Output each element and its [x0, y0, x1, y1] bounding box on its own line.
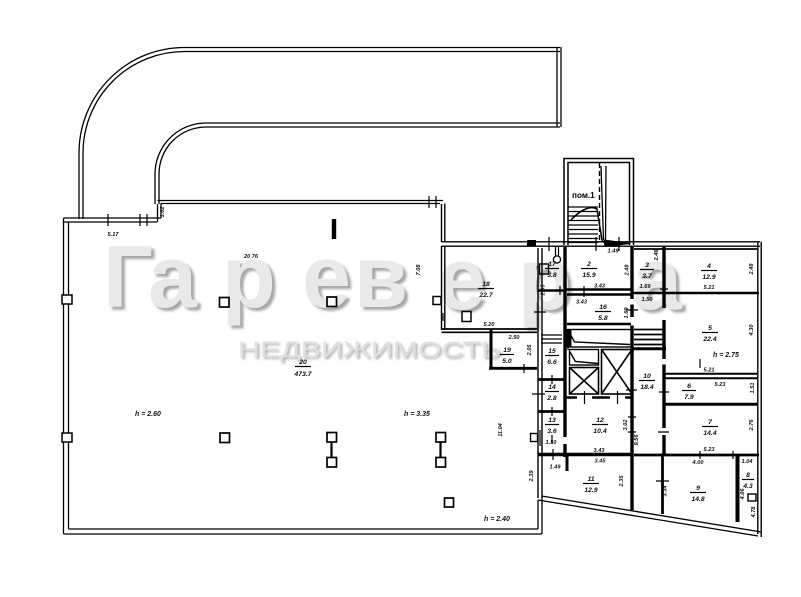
svg-text:е: е: [302, 227, 351, 326]
svg-text:h = 2.60: h = 2.60: [135, 411, 161, 418]
svg-text:3.45: 3.45: [595, 459, 607, 465]
svg-text:3.6: 3.6: [547, 428, 557, 435]
svg-text:22.7: 22.7: [478, 292, 493, 299]
svg-text:18.4: 18.4: [640, 384, 653, 391]
svg-text:4.06: 4.06: [740, 488, 746, 501]
svg-text:5.17: 5.17: [108, 232, 120, 238]
svg-text:2.48: 2.48: [749, 263, 755, 276]
svg-text:7.9: 7.9: [684, 394, 694, 401]
svg-text:11.04: 11.04: [498, 422, 504, 436]
svg-text:19: 19: [503, 347, 511, 354]
svg-text:1.49: 1.49: [608, 249, 620, 255]
svg-text:2: 2: [586, 261, 591, 268]
svg-text:4.78: 4.78: [751, 506, 757, 519]
svg-text:14.4: 14.4: [703, 430, 716, 437]
svg-text:Г: Г: [103, 227, 153, 326]
svg-text:а: а: [148, 227, 198, 326]
svg-text:1.49: 1.49: [550, 465, 562, 471]
svg-text:18: 18: [482, 281, 490, 288]
svg-text:4: 4: [706, 263, 711, 270]
svg-text:5.8: 5.8: [598, 315, 608, 322]
svg-text:2.50: 2.50: [508, 335, 521, 341]
svg-text:20: 20: [298, 359, 307, 366]
svg-text:4.00: 4.00: [692, 460, 705, 466]
svg-text:1.69: 1.69: [624, 307, 630, 319]
svg-text:1.04: 1.04: [742, 459, 754, 465]
svg-text:10.4: 10.4: [593, 428, 606, 435]
svg-text:h = 2.75: h = 2.75: [713, 352, 739, 359]
svg-text:3: 3: [645, 262, 649, 269]
svg-text:а: а: [633, 229, 683, 328]
svg-text:5: 5: [708, 325, 712, 332]
svg-text:7.08: 7.08: [416, 264, 422, 276]
svg-text:р: р: [222, 227, 276, 326]
svg-text:1.02: 1.02: [160, 206, 166, 218]
svg-text:4.30: 4.30: [749, 324, 755, 337]
svg-text:8: 8: [746, 472, 750, 479]
svg-text:2.8: 2.8: [546, 395, 557, 402]
svg-text:9.56: 9.56: [634, 434, 640, 446]
svg-text:2.48: 2.48: [625, 264, 631, 277]
svg-text:5.23: 5.23: [715, 382, 727, 388]
svg-text:12: 12: [596, 417, 604, 424]
svg-text:пом.1: пом.1: [572, 191, 595, 200]
svg-text:3.8: 3.8: [547, 272, 557, 279]
svg-text:1.50: 1.50: [546, 440, 558, 446]
svg-text:2.39: 2.39: [529, 470, 535, 483]
svg-text:20 76: 20 76: [243, 254, 259, 260]
svg-text:5.21: 5.21: [704, 285, 715, 291]
svg-text:НЕДВИЖИМОСТЬ: НЕДВИЖИМОСТЬ: [238, 337, 501, 362]
svg-text:5.23: 5.23: [704, 447, 716, 453]
svg-text:5.0: 5.0: [502, 358, 512, 365]
svg-text:3.43: 3.43: [594, 284, 606, 290]
svg-text:3.43: 3.43: [576, 300, 588, 306]
svg-text:16: 16: [599, 304, 607, 311]
svg-text:2.46: 2.46: [654, 249, 660, 262]
svg-text:13: 13: [548, 417, 556, 424]
svg-text:в: в: [354, 227, 408, 326]
svg-text:9: 9: [696, 485, 700, 492]
svg-text:h = 2.40: h = 2.40: [484, 516, 510, 523]
svg-text:2.35: 2.35: [619, 475, 625, 488]
svg-text:5.21: 5.21: [704, 368, 715, 374]
svg-text:12.9: 12.9: [584, 487, 597, 494]
svg-text:3.43: 3.43: [594, 448, 606, 454]
svg-text:1.51: 1.51: [750, 383, 756, 394]
svg-text:14.8: 14.8: [691, 496, 704, 503]
svg-text:2.05: 2.05: [527, 344, 533, 357]
svg-text:1.50: 1.50: [642, 297, 654, 303]
svg-text:10: 10: [643, 373, 651, 380]
svg-text:3.7: 3.7: [642, 273, 653, 280]
svg-text:2.05: 2.05: [541, 284, 547, 297]
svg-text:2.76: 2.76: [749, 419, 755, 432]
svg-text:5.20: 5.20: [484, 322, 496, 328]
svg-text:17: 17: [548, 261, 557, 268]
svg-text:15.9: 15.9: [582, 272, 595, 279]
svg-text:6.6: 6.6: [547, 359, 557, 366]
svg-text:12.9: 12.9: [702, 274, 715, 281]
svg-text:6: 6: [687, 383, 691, 390]
svg-text:14: 14: [548, 384, 556, 391]
svg-text:h = 3.35: h = 3.35: [404, 411, 430, 418]
svg-text:11: 11: [587, 476, 594, 483]
svg-text:1.69: 1.69: [640, 284, 652, 290]
svg-text:22.4: 22.4: [702, 336, 716, 343]
svg-text:473.7: 473.7: [293, 371, 312, 378]
svg-text:3.34: 3.34: [663, 485, 669, 497]
svg-text:3.02: 3.02: [623, 419, 629, 431]
svg-text:15: 15: [548, 348, 556, 355]
